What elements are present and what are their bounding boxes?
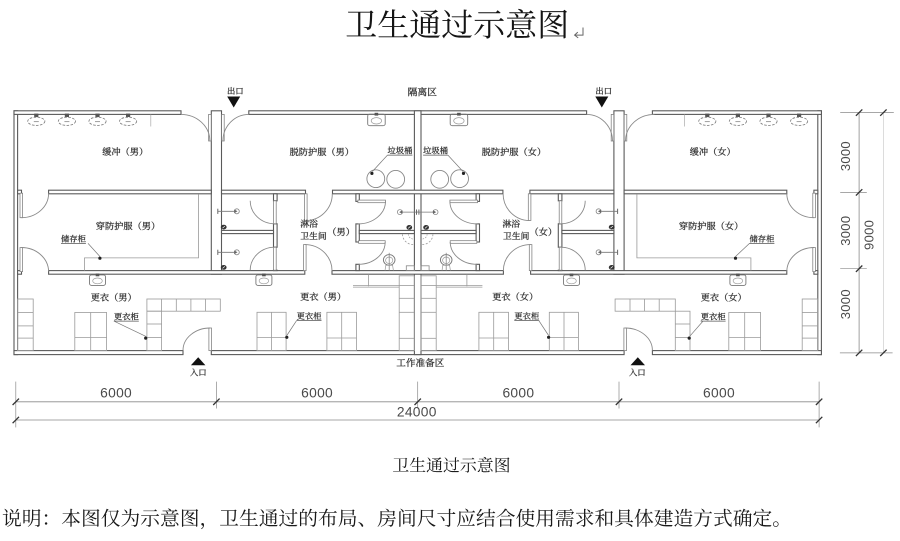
svg-text:24000: 24000	[397, 405, 437, 420]
svg-text:9000: 9000	[862, 220, 877, 250]
svg-text:6000: 6000	[703, 385, 735, 400]
svg-text:3000: 3000	[838, 289, 853, 319]
svg-text:6000: 6000	[301, 385, 333, 400]
svg-text:3000: 3000	[838, 141, 853, 171]
svg-text:3000: 3000	[838, 216, 853, 246]
svg-text:6000: 6000	[100, 385, 132, 400]
svg-text:6000: 6000	[502, 385, 534, 400]
